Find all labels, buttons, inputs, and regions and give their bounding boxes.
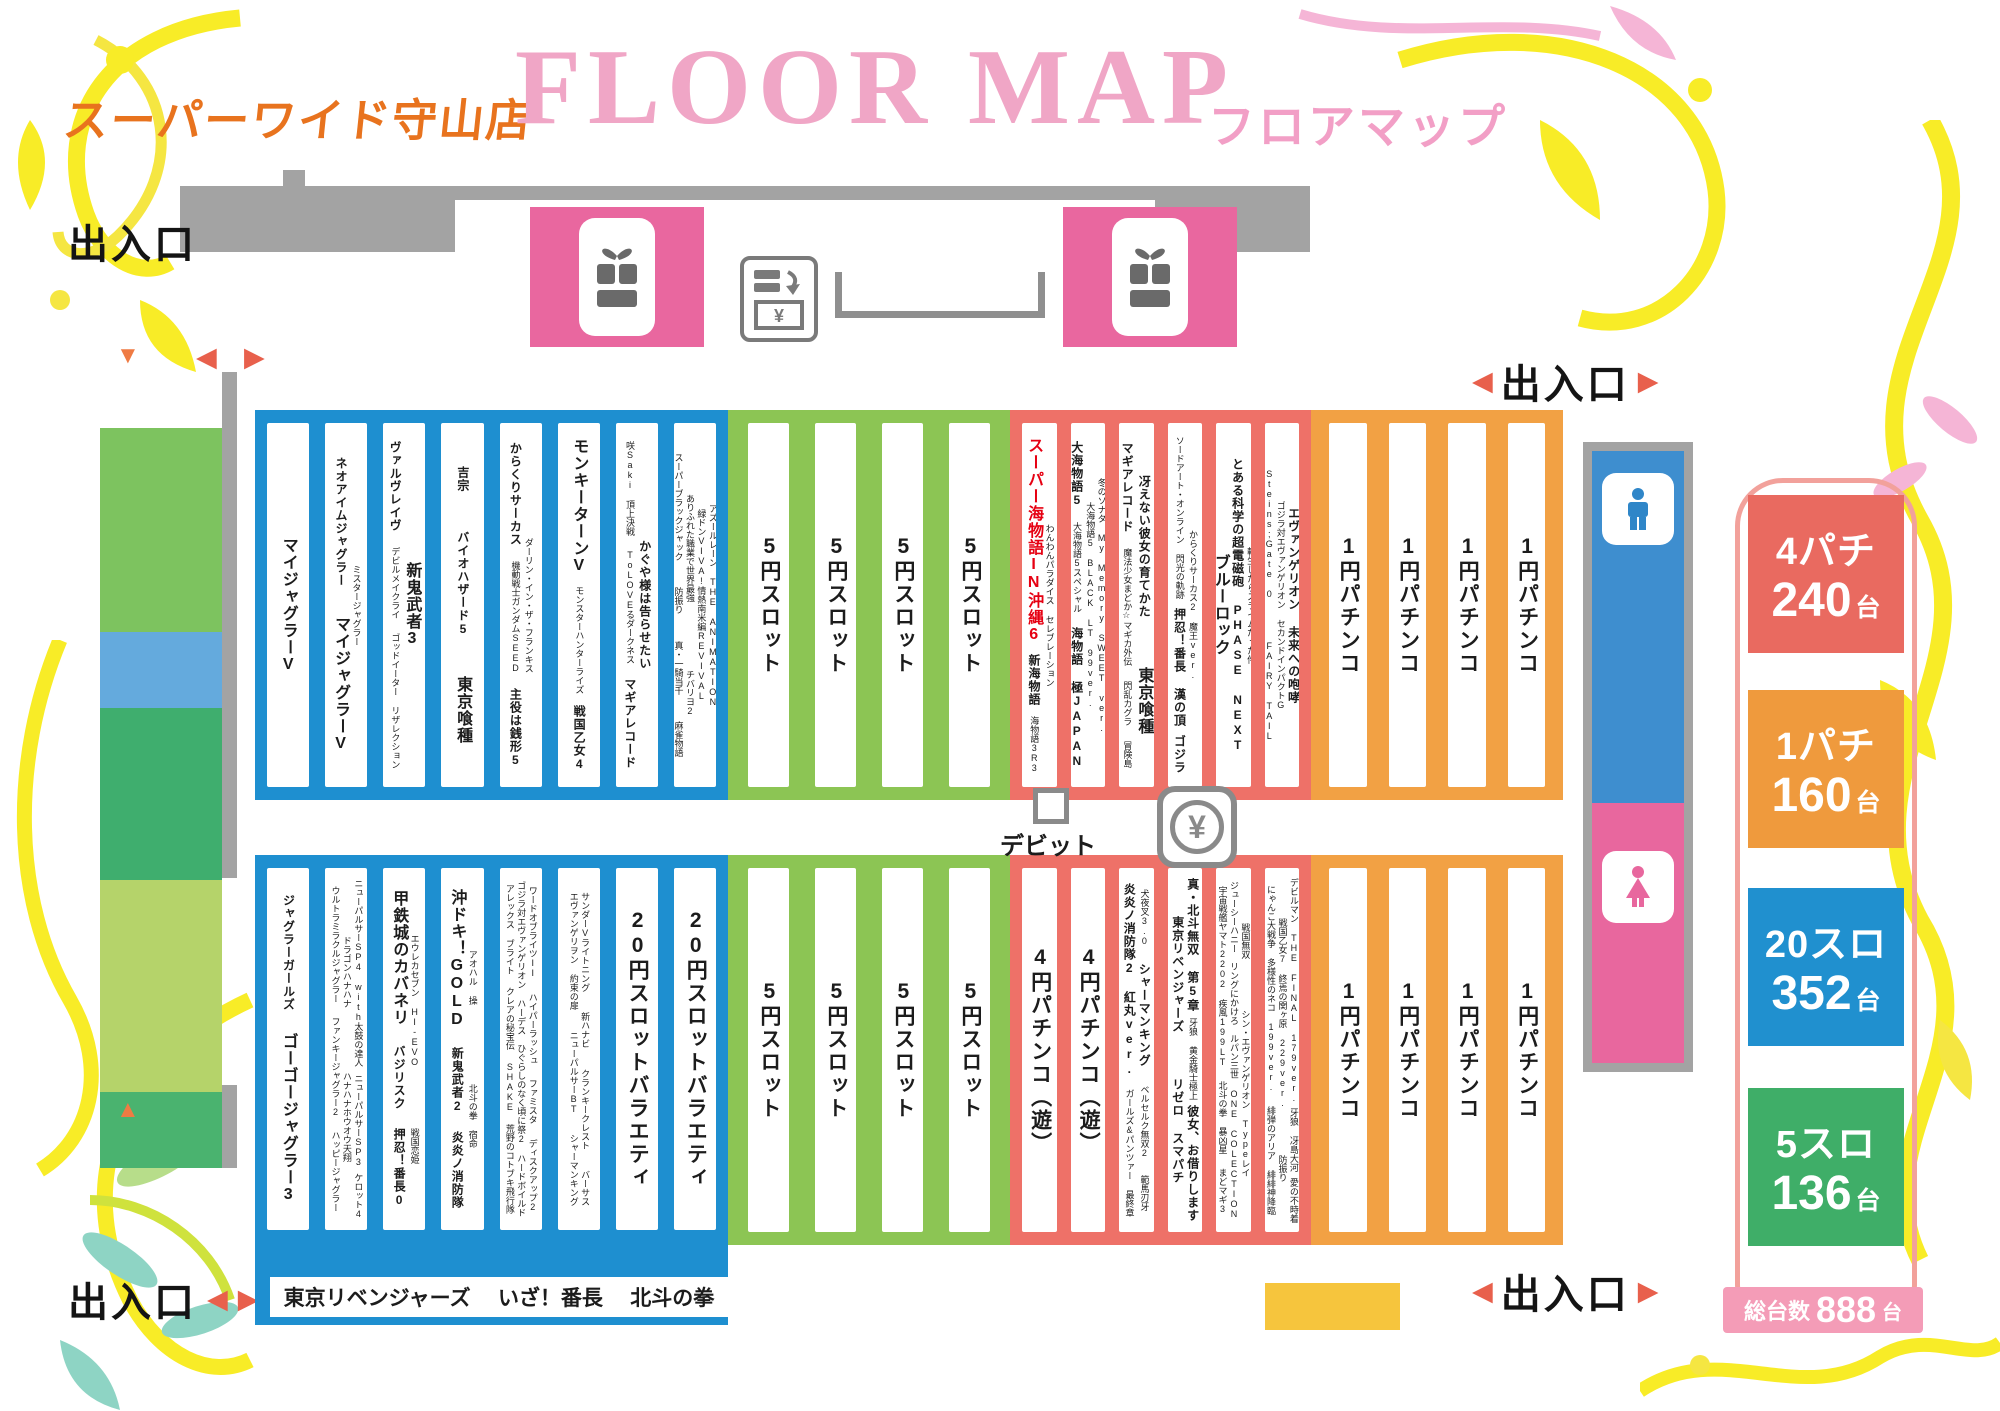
machine-label: 東京喰種 xyxy=(454,676,471,744)
machine-label: 緋弾のアリア 緋緋神降臨 xyxy=(1266,1106,1275,1215)
left-strip-yellowgreen xyxy=(100,880,222,1092)
machine-label: ハーデス xyxy=(516,999,525,1035)
gift-icon xyxy=(579,218,655,336)
machine-label: シン・エヴァンゲリオン Typeレイ xyxy=(1240,1010,1249,1177)
machine-column: 20円スロットバラエティ xyxy=(616,868,658,1230)
machine-column: ブルーロックとある科学の超電磁砲 PHASE NEXT転生したらスライムだった件 xyxy=(1216,423,1251,787)
legend-count: 136 xyxy=(1771,1167,1851,1220)
machine-label: とある科学の超電磁砲 PHASE NEXT xyxy=(1231,458,1244,753)
machine-label: 5円スロット xyxy=(958,980,981,1120)
machine-column: 1円パチンコ xyxy=(1329,868,1367,1232)
machine-label: ハードボイルド xyxy=(516,1154,525,1217)
machine-column: 1円パチンコ xyxy=(1508,423,1546,787)
machine-column: 1円パチンコ xyxy=(1508,868,1546,1232)
wall-top-left-block xyxy=(180,186,455,252)
machine-label: SHAKE xyxy=(504,1062,513,1112)
machine-label: ケロット4 xyxy=(353,1173,362,1219)
exit-bottom-right: ◀ 出入口 ▶ xyxy=(1472,1262,1659,1320)
island-label: 北斗の拳 xyxy=(630,1282,714,1312)
machine-column: Steins;Gate 0FAIRY TAILゴジラ対エヴァンゲリオン セカンド… xyxy=(1265,423,1300,787)
wall-left-bar-lower xyxy=(222,1085,237,1168)
machine-column: 20円スロットバラエティ xyxy=(674,868,716,1230)
machine-label: アレックス ブライト xyxy=(504,884,513,975)
machine-label: 押忍！番長 漢の頂 xyxy=(1173,608,1186,727)
machine-label: ジューシーハニー xyxy=(1229,881,1238,953)
machine-label: 5円スロット xyxy=(757,980,780,1120)
machine-label: クレアの秘宝伝 xyxy=(504,987,513,1050)
section-slot20-top: マイジャグラーVネオアイムジャグラーマイジャグラーVミスタージャグラーヴァルヴレ… xyxy=(255,410,728,800)
machine-label: ヴァルヴレイヴ xyxy=(388,441,401,532)
machine-label: 魔法少女まどか☆マギカ外伝 xyxy=(1122,548,1131,666)
machine-label: 閃乱カグラ xyxy=(1122,681,1131,726)
machine-label: リゼロ スマパチ xyxy=(1171,1078,1184,1184)
machine-label: 真・一騎当千 xyxy=(674,641,683,695)
machine-column: ソードアート・オンライン 閃光の軌跡押忍！番長 漢の頂ゴジラからくりサーカス2 … xyxy=(1168,423,1203,787)
machine-label: ゴッドイーター リザレクション xyxy=(390,633,399,769)
machine-column: 吉宗バイオハザード5東京喰種 xyxy=(441,423,483,787)
machine-column: エヴァンゲリヲン 約束の扉ニューパルサーBTシャーマンキングサンダーVライトニン… xyxy=(558,868,600,1230)
strip-arrow-up-icon: ▲ xyxy=(116,1098,140,1122)
machine-column: 4円パチンコ（遊） xyxy=(1071,868,1106,1232)
legend-label: 20スロ xyxy=(1765,913,1887,968)
machine-label: 彼女、お借りします xyxy=(1186,1105,1199,1222)
machine-column: ウルトラミラクルジャグラーファンキージャグラー2ハッピージャグラードラゴンハナハ… xyxy=(325,868,367,1230)
machine-column: ヴァルヴレイヴデビルメイクライゴッドイーター リザレクション新鬼武者3 xyxy=(383,423,425,787)
machine-label: シャーマンキング xyxy=(1137,963,1150,1067)
machine-label: 真・北斗無双 第5章 xyxy=(1186,878,1199,1012)
exit-top-right: ◀ 出入口 ▶ xyxy=(1472,352,1659,410)
machine-label: 大海物語5 BLACK LT 99ver. xyxy=(1085,502,1094,708)
arrow-right-icon: ▶ xyxy=(1638,368,1659,395)
machine-label: ニューパルサーBT xyxy=(568,1031,577,1114)
machine-label: 戦国乙女7 終焉の関ヶ原 229ver. xyxy=(1277,918,1286,1108)
machine-label: ファミスタ xyxy=(527,1079,536,1124)
machine-column: モンキーターンVモンスターハンターライズ戦国乙女4 xyxy=(558,423,600,787)
machine-label: 宇宙戦艦ヤマト2202 疾風199LT xyxy=(1217,886,1226,1067)
machine-label: ニューパルサーSP3 xyxy=(353,1074,362,1167)
machine-label: ワードオブライツII xyxy=(527,886,536,978)
arrow-left-icon: ◀ xyxy=(1472,1278,1493,1305)
machine-column: 5円スロット xyxy=(949,423,990,787)
machine-label: ベルセルク無双2 xyxy=(1139,1085,1148,1158)
machine-column: からくりサーカス機動戦士ガンダムSEED主役は銭形5ダーリン・イン・ザ・フランキ… xyxy=(500,423,542,787)
island-label: いざ！番長 xyxy=(498,1282,603,1312)
machine-label: 1円パチンコ xyxy=(1396,535,1419,675)
machine-label: 新鬼武者2 xyxy=(450,1047,463,1114)
machine-column: マギアレコード魔法少女まどか☆マギカ外伝閃乱カグラ冒険島冴えない彼女の育てかた東… xyxy=(1119,423,1154,787)
machine-label: マギアレコード xyxy=(1120,442,1133,533)
machine-column: スーパー海物語IN沖縄6新海物語海物語3R3わんわんパラダイス セレブレーション xyxy=(1022,423,1057,787)
machine-label: 新海物語 xyxy=(1027,654,1040,706)
machine-label: ダーリン・イン・ザ・フランキス xyxy=(523,538,532,673)
machine-label: エウレカセブン HI-EVO xyxy=(409,934,418,1067)
machine-label: 5円スロット xyxy=(824,980,847,1120)
machine-label: 4円パチンコ（遊） xyxy=(1028,946,1051,1155)
machine-label: 冒険島 xyxy=(1122,741,1131,768)
machine-label: アズールレーン THE ANIMATION xyxy=(707,504,716,707)
machine-label: わんわんパラダイス セレブレーション xyxy=(1044,524,1053,687)
machine-label: エヴァンゲリオン 未来への咆哮 xyxy=(1287,507,1299,704)
machine-label: マイジャグラーV xyxy=(279,537,296,674)
machine-label: 北斗の拳 暴凶星 xyxy=(1217,1081,1226,1154)
machine-label: 咲Saki 頂上決戦 xyxy=(625,441,634,536)
machine-label: スーパーブラックジャック xyxy=(674,453,683,561)
machine-label: 防振り xyxy=(1277,1155,1286,1182)
counter-desk xyxy=(835,272,1045,318)
machine-label: 戦国無双 xyxy=(1240,923,1249,959)
machine-label: 防振り xyxy=(674,587,683,614)
male-icon xyxy=(1602,473,1674,545)
machine-label: 5円スロット xyxy=(891,980,914,1120)
machine-column: 炎炎ノ消防隊冬のソナタ My Memory 199LT真・一騎当千にゃんこ大戦争… xyxy=(1265,868,1300,1232)
machine-column: 5円スロット xyxy=(882,423,923,787)
legend-item-4パチ: 4パチ240台 xyxy=(1748,495,1904,653)
machine-label: 1円パチンコ xyxy=(1396,980,1419,1120)
machine-label: ルパン三世 ONE COLECTION xyxy=(1229,1034,1238,1219)
machine-label: 5円スロット xyxy=(757,535,780,675)
machine-label: 主役は銭形5 xyxy=(508,688,521,768)
machine-label: 20円スロットバラエティ xyxy=(625,909,648,1189)
machine-label: 冴えない彼女の育てかた xyxy=(1137,475,1150,618)
legend-unit: 台 xyxy=(1856,789,1881,817)
exit-bottom-left: 出入口 ◀ ▶ xyxy=(68,1270,259,1328)
machine-label: ハイパーラッシュ xyxy=(527,993,536,1065)
machine-label: まどマギ3 xyxy=(1217,1168,1226,1214)
machine-label: 機動戦士ガンダムSEED xyxy=(510,561,519,673)
machine-label: 沖ドキ！GOLD xyxy=(448,889,465,1029)
machine-label: 戦国恋姫 xyxy=(409,1128,418,1164)
prize-counter-left xyxy=(530,207,704,347)
machine-label: にゃんこ大戦争 多様性のネコ 199ver. xyxy=(1266,885,1275,1092)
machine-label: 北斗の拳 宿命 xyxy=(467,1084,476,1148)
left-strip-green xyxy=(100,428,222,632)
legend-label: 1パチ xyxy=(1776,715,1876,770)
machine-label: ディスクアップ2 xyxy=(527,1139,536,1212)
store-name: スーパーワイド守山店 xyxy=(61,84,537,149)
cash-machine-icon: ¥ xyxy=(1157,786,1237,868)
machine-label: ドラゴンハナハナ xyxy=(341,936,350,1008)
machine-label: リングにかけろ xyxy=(1229,962,1238,1025)
female-icon xyxy=(1602,851,1674,923)
restroom-block xyxy=(1583,442,1693,1072)
machine-label: ニューパルサーSP4 with太鼓の達人 xyxy=(353,879,362,1067)
machine-label: 海物語3R3 xyxy=(1029,716,1038,773)
machine-label: 大海物語5 xyxy=(1071,441,1083,508)
wall-stub xyxy=(283,170,305,186)
left-strip-teal xyxy=(100,708,222,880)
legend-unit: 台 xyxy=(1856,1187,1881,1215)
machine-label: 転生したらスライムだった件 xyxy=(1246,547,1251,664)
machine-label: 20円スロットバラエティ xyxy=(684,909,707,1189)
machine-column: 1円パチンコ xyxy=(1389,868,1427,1232)
exit-top-left: 出入口 xyxy=(68,212,197,270)
page-title-jp: フロアマップ xyxy=(1208,88,1508,157)
machine-column: 沖ドキ！GOLD新鬼武者2炎炎ノ消防隊アオハル 操北斗の拳 宿命 xyxy=(441,868,483,1230)
machine-label: バイオハザード5 xyxy=(456,531,469,637)
machine-label: 戦国乙女4 xyxy=(572,705,585,772)
section-pachi1-top: 1円パチンコ1円パチンコ1円パチンコ1円パチンコ xyxy=(1311,410,1563,800)
machine-column: 1円パチンコ xyxy=(1448,868,1486,1232)
gift-icon xyxy=(1112,218,1188,336)
machine-label: 緑ドンVIVA!情熱南米編REVIVAL xyxy=(696,509,705,701)
restroom-male xyxy=(1592,451,1684,803)
machine-column: アレックス ブライトクレアの秘宝伝SHAKE荒野のコトブキ飛行隊ゴジラ対エヴァン… xyxy=(500,868,542,1230)
machine-label: ネオアイムジャグラー xyxy=(334,457,347,587)
machine-label: ゴジラ xyxy=(1173,735,1186,774)
machine-label: ゴジラ対エヴァンゲリオン xyxy=(516,881,525,989)
machine-label: 東京リベンジャーズ xyxy=(1171,916,1184,1033)
legend-count: 240 xyxy=(1771,574,1851,627)
machine-column: 炎炎ノ消防隊2 紅丸ver.ガールズ&パンツァー 最終章犬夜叉3.0シャーマンキ… xyxy=(1119,868,1154,1232)
machine-label: 炎炎ノ消防隊 xyxy=(450,1131,463,1209)
machine-label: ファンキージャグラー2 xyxy=(330,1017,339,1117)
machine-label: 押忍！番長0 xyxy=(392,1128,405,1208)
bottom-island-strip: 東京リベンジャーズいざ！番長北斗の拳 xyxy=(270,1277,728,1317)
section-slot20-bottom: ジャグラーガールズゴーゴージャグラー3ウルトラミラクルジャグラーファンキージャグ… xyxy=(255,855,728,1325)
legend-item-20スロ: 20スロ352台 xyxy=(1748,888,1904,1046)
machine-label: ガールズ&パンツァー 最終章 xyxy=(1124,1089,1133,1217)
machine-label: クランキークレスト xyxy=(580,1069,589,1150)
machine-label: ウルトラミラクルジャグラー xyxy=(330,886,339,1003)
machine-label: 海物語 極JAPAN xyxy=(1071,627,1083,769)
machine-label: 吉宗 xyxy=(456,466,469,492)
machine-label: 犬夜叉3.0 xyxy=(1139,889,1148,946)
machine-label: 1円パチンコ xyxy=(1515,535,1538,675)
svg-text:¥: ¥ xyxy=(774,306,784,326)
machine-label: 大海物語5スペシャル xyxy=(1072,522,1081,613)
machine-column: ジャグラーガールズゴーゴージャグラー3 xyxy=(267,868,309,1230)
legend-count: 160 xyxy=(1771,769,1851,822)
machine-label: ブルーロック xyxy=(1216,554,1229,656)
legend-count: 352 xyxy=(1771,967,1851,1020)
machine-label: 甲鉄城のカバネリ xyxy=(390,890,407,1026)
machine-column: 東京リベンジャーズリゼロ スマパチ真・北斗無双 第5章牙狼 黄金騎士極上彼女、お… xyxy=(1168,868,1203,1232)
machine-label: モンキーターンV xyxy=(570,438,587,575)
flourish-top-right xyxy=(1280,0,1740,370)
machine-label: バジリスク xyxy=(392,1045,405,1110)
machine-label: ToLOVEるダークネス xyxy=(625,550,634,664)
machine-label: 5円スロット xyxy=(958,535,981,675)
machine-label: 範馬刃牙 xyxy=(1139,1175,1148,1211)
machine-column: 宇宙戦艦ヤマト2202 疾風199LT北斗の拳 暴凶星まどマギ3ジューシーハニー… xyxy=(1216,868,1251,1232)
machine-column: 咲Saki 頂上決戦ToLOVEるダークネスマギアレコードかぐや様は告らせたい xyxy=(616,423,658,787)
machine-label: シャーマンキング xyxy=(568,1134,577,1206)
machine-column: 5円スロット xyxy=(882,868,923,1232)
machine-label: ハッピージャグラー xyxy=(330,1131,339,1212)
machine-label: アオハル 操 xyxy=(467,950,476,1005)
machine-column: 5円スロット xyxy=(815,868,856,1232)
machine-label: 麻雀物語 xyxy=(674,721,683,757)
legend-item-1パチ: 1パチ160台 xyxy=(1748,690,1904,848)
arrow-right-icon: ▶ xyxy=(1638,1278,1659,1305)
wall-left-bar xyxy=(222,372,237,878)
section-slot5-top: 5円スロット5円スロット5円スロット5円スロット xyxy=(728,410,1010,800)
machine-column: 5円スロット xyxy=(815,423,856,787)
machine-label: 東京喰種 xyxy=(1135,667,1152,735)
card-unit-icon: ¥ xyxy=(740,256,818,342)
machine-label: 1円パチンコ xyxy=(1515,980,1538,1120)
machine-label: かぐや様は告らせたい xyxy=(638,540,651,670)
machine-label: ジャグラーガールズ xyxy=(282,894,295,1011)
legend-unit: 台 xyxy=(1856,594,1881,622)
machine-column: 1円パチンコ xyxy=(1448,423,1486,787)
machine-label: 1円パチンコ xyxy=(1336,980,1359,1120)
service-block-yellow xyxy=(1265,1283,1400,1330)
machine-label: ミスタージャグラー xyxy=(351,565,360,646)
machine-label: ハナハナホウオウ天翔 xyxy=(341,1072,350,1162)
machine-column: マイジャグラーV xyxy=(267,423,309,787)
machine-column: 5円スロット xyxy=(748,868,789,1232)
machine-label: エヴァンゲリヲン 約束の扉 xyxy=(568,892,577,1010)
machine-label: 4円パチンコ（遊） xyxy=(1076,946,1099,1155)
debit-label: デビット xyxy=(1000,826,1096,861)
arrow-left-icon: ◀ xyxy=(207,1286,228,1313)
section-slot5-bottom: 5円スロット5円スロット5円スロット5円スロット xyxy=(728,855,1010,1245)
machine-label: 炎炎ノ消防隊2 紅丸ver. xyxy=(1122,883,1135,1077)
flourish-bottom-right xyxy=(1640,1325,2000,1411)
machine-label: デビルメイクライ xyxy=(390,547,399,619)
machine-column: 1円パチンコ xyxy=(1329,423,1367,787)
prize-counter-right xyxy=(1063,207,1237,347)
machine-label: 新ハナビ xyxy=(580,1012,589,1048)
machine-label: 1円パチンコ xyxy=(1336,535,1359,675)
machine-label: チバリヨ2 xyxy=(685,670,694,716)
floor-map-canvas: スーパーワイド守山店 FLOOR MAP フロアマップ ▼ ▲ 出入口 ◀ ▶ … xyxy=(0,0,2000,1411)
island-label: 東京リベンジャーズ xyxy=(284,1282,471,1312)
machine-label: 荒野のコトブキ飛行隊 xyxy=(504,1124,513,1214)
machine-label: ゴーゴージャグラー3 xyxy=(279,1033,296,1204)
machine-label: 新鬼武者3 xyxy=(403,562,420,648)
restroom-female xyxy=(1592,803,1684,1063)
machine-label: サンダーVライトニング xyxy=(580,892,589,992)
machine-label: 牙狼 冴島大河 xyxy=(1288,1108,1297,1172)
machine-column: 5円スロット xyxy=(748,423,789,787)
machine-label: 1円パチンコ xyxy=(1455,535,1478,675)
section-pachi4-bottom: 4円パチンコ（遊）4円パチンコ（遊）炎炎ノ消防隊2 紅丸ver.ガールズ&パンツ… xyxy=(1010,855,1311,1245)
legend-item-5スロ: 5スロ136台 xyxy=(1748,1088,1904,1246)
left-strip-blue xyxy=(100,632,222,708)
machine-column: 5円スロット xyxy=(949,868,990,1232)
page-title: FLOOR MAP xyxy=(515,26,1235,150)
machine-column: 1円パチンコ xyxy=(1389,423,1427,787)
machine-label: ゴジラ対エヴァンゲリオン セカンドインパクトG xyxy=(1275,501,1284,710)
machine-label: スーパー海物語IN沖縄6 xyxy=(1025,437,1042,644)
machine-label: 5円スロット xyxy=(891,535,914,675)
machine-label: 冬のソナタ My Memory SWEET ver. xyxy=(1096,478,1105,733)
machine-label: ひぐらしのなく頃に祭2 xyxy=(516,1044,525,1144)
machine-label: 1円パチンコ xyxy=(1455,980,1478,1120)
legend-label: 5スロ xyxy=(1776,1113,1876,1168)
machine-column: 甲鉄城のカバネリバジリスク押忍！番長0エウレカセブン HI-EVO戦国恋姫 xyxy=(383,868,425,1230)
entrance-arrow-left-icon: ◀ xyxy=(196,344,217,371)
machine-label: 愛の不時着 xyxy=(1288,1178,1297,1223)
machine-label: からくりサーカス2 魔王ver. xyxy=(1188,530,1197,680)
total-machine-count: 総台数 888 台 xyxy=(1723,1287,1923,1333)
machine-label: バーサス xyxy=(580,1170,589,1206)
entrance-arrow-right-icon: ▶ xyxy=(244,344,265,371)
debit-terminal xyxy=(1033,788,1069,824)
machine-label: からくりサーカス xyxy=(508,442,521,546)
machine-column: 4円パチンコ（遊） xyxy=(1022,868,1057,1232)
legend-unit: 台 xyxy=(1856,987,1881,1015)
arrow-left-icon: ◀ xyxy=(1472,368,1493,395)
machine-label: Steins;Gate 0 xyxy=(1265,469,1274,599)
machine-label: 牙狼 黄金騎士極上 xyxy=(1188,1018,1197,1100)
machine-label: マギアレコード xyxy=(623,678,636,769)
legend-label: 4パチ xyxy=(1776,520,1876,575)
machine-column: スーパーブラックジャック防振り真・一騎当千麻雀物語ありふれた職業で世界最強チバリ… xyxy=(674,423,716,787)
machine-label: ソードアート・オンライン 閃光の軌跡 xyxy=(1174,436,1183,599)
machine-label: FAIRY TAIL xyxy=(1265,641,1274,741)
machine-column: ネオアイムジャグラーマイジャグラーVミスタージャグラー xyxy=(325,423,367,787)
section-pachi1-bottom: 1円パチンコ1円パチンコ1円パチンコ1円パチンコ xyxy=(1311,855,1563,1245)
machine-label: マイジャグラーV xyxy=(332,616,349,753)
section-pachi4-top: スーパー海物語IN沖縄6新海物語海物語3R3わんわんパラダイス セレブレーション… xyxy=(1010,410,1311,800)
machine-label: ありふれた職業で世界最強 xyxy=(685,494,694,602)
machine-label: デビルマン THE FINAL 179ver. xyxy=(1288,878,1297,1103)
machine-column: 大海物語5大海物語5スペシャル海物語 極JAPAN大海物語5 BLACK LT … xyxy=(1071,423,1106,787)
machine-label: 5円スロット xyxy=(824,535,847,675)
machine-label: モンスターハンターライズ xyxy=(574,586,583,694)
strip-arrow-down-icon: ▼ xyxy=(116,344,140,368)
